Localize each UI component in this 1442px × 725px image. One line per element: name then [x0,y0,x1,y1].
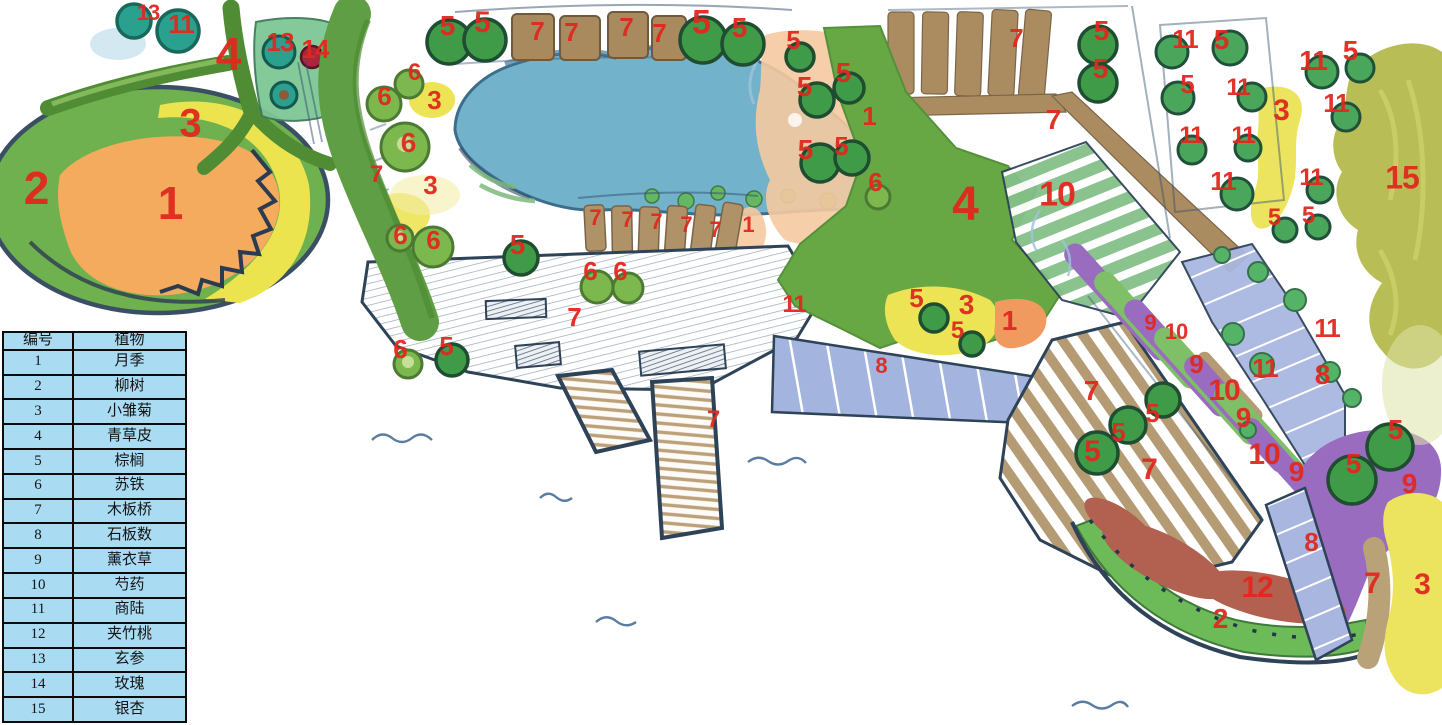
legend-table: 编号 植物 1月季2柳树3小雏菊4青草皮5棕榈6苏铁7木板桥8石板数9薰衣草10… [2,331,187,723]
table-row: 4青草皮 [3,424,186,449]
table-row: 8石板数 [3,523,186,548]
table-row: 6苏铁 [3,474,186,499]
garden-plan-map [0,0,1442,725]
legend-header-row: 编号 植物 [3,332,186,350]
garden-plan-page: 1311413142315577775566367366577777155515… [0,0,1442,725]
table-row: 15银杏 [3,697,186,722]
table-row: 10芍药 [3,573,186,598]
legend-body: 1月季2柳树3小雏菊4青草皮5棕榈6苏铁7木板桥8石板数9薰衣草10芍药11商陆… [3,350,186,722]
pier-long [652,378,722,538]
wood-strip-right [1368,548,1379,658]
table-row: 1月季 [3,350,186,375]
deck-steps [486,299,547,319]
deck-steps [515,342,561,368]
table-row: 3小雏菊 [3,399,186,424]
legend-header-number: 编号 [3,332,73,350]
table-row: 13玄参 [3,648,186,673]
table-row: 14玫瑰 [3,672,186,697]
table-row: 5棕榈 [3,449,186,474]
table-row: 11商陆 [3,598,186,623]
table-row: 2柳树 [3,375,186,400]
table-row: 12夹竹桃 [3,623,186,648]
table-row: 9薰衣草 [3,548,186,573]
table-row: 7木板桥 [3,499,186,524]
legend-header-plant: 植物 [73,332,186,350]
